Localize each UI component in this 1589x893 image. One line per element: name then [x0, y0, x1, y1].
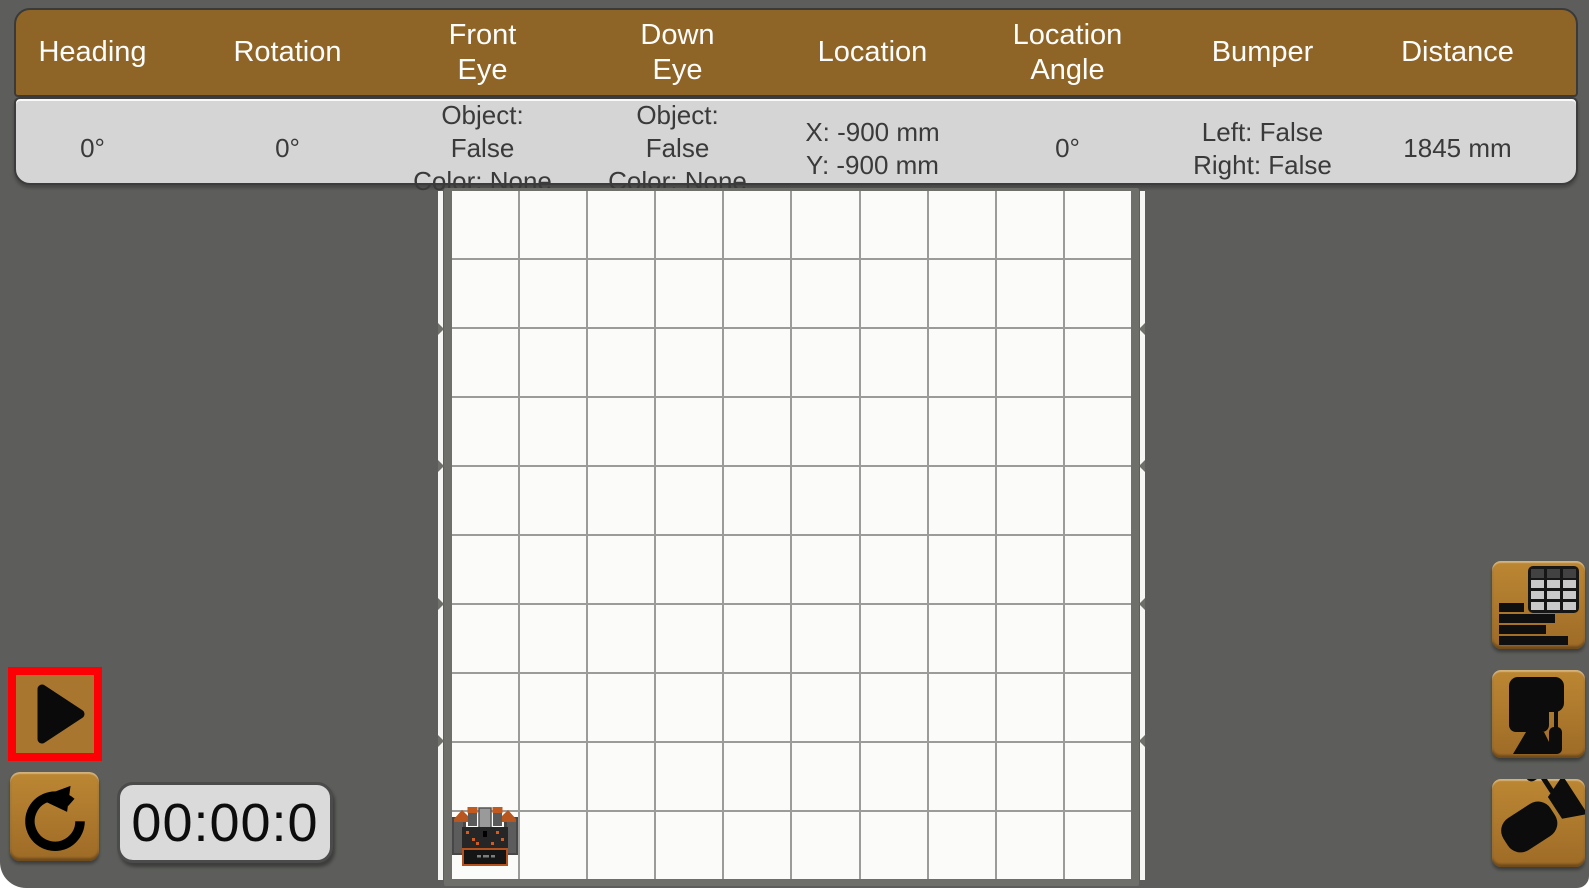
field-cell: [452, 398, 518, 465]
field-cell: [997, 605, 1063, 672]
camera-view-button[interactable]: [1492, 779, 1585, 867]
field-cell: [452, 191, 518, 258]
column-header-front-eye: Front Eye: [406, 18, 601, 88]
field-cell: [861, 674, 927, 741]
field-cell: [1065, 743, 1131, 810]
value-location-angle: 0°: [991, 132, 1186, 165]
field-cell: [1065, 398, 1131, 465]
field-cell: [452, 536, 518, 603]
field-cell: [997, 743, 1063, 810]
field-cell: [656, 743, 722, 810]
field-cell: [520, 674, 586, 741]
field-cell: [997, 812, 1063, 879]
field-cell: [792, 674, 858, 741]
value-bumper: Left: False Right: False: [1186, 116, 1381, 182]
field-cell: [997, 260, 1063, 327]
field-cell: [861, 605, 927, 672]
field-cell: [520, 260, 586, 327]
field-cell: [588, 398, 654, 465]
field-cell: [588, 605, 654, 672]
header-label-line: Eye: [601, 53, 754, 88]
field-cell: [792, 743, 858, 810]
field-cell: [656, 674, 722, 741]
value-line: 0°: [16, 132, 169, 165]
value-rotation: 0°: [211, 132, 406, 165]
value-down-eye: Object: False Color: None: [601, 99, 796, 198]
field-wall-notch: [1139, 735, 1145, 747]
field-cell: [861, 329, 927, 396]
field-cell: [929, 260, 995, 327]
field-cell: [724, 467, 790, 534]
field-cell: [452, 605, 518, 672]
value-distance: 1845 mm: [1381, 132, 1576, 165]
header-label-line: Bumper: [1186, 35, 1339, 70]
field-cell: [792, 605, 858, 672]
field-cell: [792, 467, 858, 534]
field-cell: [520, 398, 586, 465]
field-cell: [929, 605, 995, 672]
timer-display: 00:00:0: [117, 782, 333, 863]
value-line: Object: False: [601, 99, 754, 165]
field-cell: [1065, 812, 1131, 879]
value-line: Right: False: [1186, 149, 1339, 182]
field-cell: [520, 605, 586, 672]
value-heading: 0°: [16, 132, 211, 165]
robot-sprite[interactable]: [452, 807, 518, 867]
field-cell: [929, 191, 995, 258]
field-cell: [588, 674, 654, 741]
field-cell: [724, 605, 790, 672]
field-cell: [588, 743, 654, 810]
header-label-line: Distance: [1381, 35, 1534, 70]
field-wall-notch: [438, 735, 444, 747]
field-cell: [520, 191, 586, 258]
column-header-location-angle: Location Angle: [991, 18, 1186, 88]
field-cell: [588, 536, 654, 603]
robot-monitor-icon: [1492, 670, 1585, 758]
camera-view-icon: [1492, 779, 1585, 867]
field-cell: [452, 467, 518, 534]
field-cell: [724, 398, 790, 465]
field-cell: [656, 260, 722, 327]
robot-front-right-corner: [502, 810, 516, 822]
field-cell: [929, 674, 995, 741]
field-cell: [929, 398, 995, 465]
value-location: X: -900 mm Y: -900 mm: [796, 116, 991, 182]
field-wall-notch: [1139, 460, 1145, 472]
field-cell: [656, 605, 722, 672]
header-label-line: Angle: [991, 53, 1144, 88]
field-cell: [588, 329, 654, 396]
column-header-heading: Heading: [16, 35, 211, 70]
field-wall-notch: [438, 323, 444, 335]
field-cell: [997, 329, 1063, 396]
column-header-bumper: Bumper: [1186, 35, 1381, 70]
timer-value: 00:00:0: [131, 792, 318, 854]
field-cell: [656, 812, 722, 879]
field-grid: [452, 191, 1131, 879]
field-right-wall: [1140, 191, 1145, 880]
robot-monitor-button[interactable]: [1492, 670, 1585, 758]
field-cell: [1065, 329, 1131, 396]
header-label-line: Heading: [16, 35, 169, 70]
field-cell: [724, 812, 790, 879]
field-cell: [656, 536, 722, 603]
field-cell: [588, 260, 654, 327]
play-button[interactable]: [8, 667, 102, 761]
field-cell: [861, 812, 927, 879]
field-cell: [861, 536, 927, 603]
header-label-line: Eye: [406, 53, 559, 88]
column-header-location: Location: [796, 35, 991, 70]
field-cell: [792, 812, 858, 879]
field-cell: [997, 536, 1063, 603]
field-cell: [724, 260, 790, 327]
value-line: 1845 mm: [1381, 132, 1534, 165]
field-wall-notch: [438, 598, 444, 610]
field-cell: [861, 467, 927, 534]
field-cell: [997, 674, 1063, 741]
field-cell: [520, 329, 586, 396]
value-front-eye: Object: False Color: None: [406, 99, 601, 198]
field-cell: [1065, 605, 1131, 672]
field-cell: [520, 467, 586, 534]
field-cell: [861, 191, 927, 258]
play-icon: [16, 675, 94, 753]
column-header-rotation: Rotation: [211, 35, 406, 70]
field-cell: [724, 329, 790, 396]
field-wall-notch: [1139, 323, 1145, 335]
field-cell: [452, 260, 518, 327]
field-cell: [1065, 191, 1131, 258]
header-label-line: Down: [601, 18, 754, 53]
field-cell: [929, 329, 995, 396]
field-cell: [1065, 536, 1131, 603]
field-cell: [861, 743, 927, 810]
field-wall-notch: [438, 460, 444, 472]
field-cell: [929, 812, 995, 879]
value-line: Object: False: [406, 99, 559, 165]
field-cell: [520, 743, 586, 810]
field-cell: [792, 536, 858, 603]
field-cell: [452, 674, 518, 741]
field-cell: [588, 812, 654, 879]
field-cell: [452, 329, 518, 396]
value-line: 0°: [991, 132, 1144, 165]
field-cell: [997, 191, 1063, 258]
app-window: Heading Rotation Front Eye Down Eye Loca…: [0, 0, 1589, 893]
reset-button[interactable]: [10, 772, 99, 861]
header-label-line: Location: [796, 35, 949, 70]
field-cell: [656, 467, 722, 534]
value-line: 0°: [211, 132, 364, 165]
sensor-dashboard-icon: [1492, 561, 1585, 649]
field-cell: [724, 743, 790, 810]
field-wall-notch: [1139, 598, 1145, 610]
header-label-line: Front: [406, 18, 559, 53]
field-cell: [724, 536, 790, 603]
header-label-line: Location: [991, 18, 1144, 53]
robot-front-left-corner: [454, 810, 468, 822]
field-cell: [724, 674, 790, 741]
field-cell: [452, 743, 518, 810]
field-cell: [861, 398, 927, 465]
value-line: Y: -900 mm: [796, 149, 949, 182]
field-cell: [792, 191, 858, 258]
field-cell: [1065, 260, 1131, 327]
sensor-dashboard-toggle-button[interactable]: [1492, 561, 1585, 649]
field-cell: [724, 191, 790, 258]
field-cell: [656, 329, 722, 396]
field-cell: [792, 398, 858, 465]
field-left-wall: [438, 191, 443, 880]
header-label-line: Rotation: [211, 35, 364, 70]
field-cell: [1065, 467, 1131, 534]
field-cell: [656, 398, 722, 465]
field-cell: [588, 467, 654, 534]
field-cell: [520, 812, 586, 879]
field-cell: [520, 536, 586, 603]
field-cell: [997, 467, 1063, 534]
field-cell: [929, 743, 995, 810]
field-cell: [656, 191, 722, 258]
reset-counterclockwise-icon: [17, 779, 93, 855]
field-cell: [929, 536, 995, 603]
sensor-dashboard-values: 0° 0° Object: False Color: None Object: …: [14, 97, 1578, 185]
field-cell: [929, 467, 995, 534]
column-header-down-eye: Down Eye: [601, 18, 796, 88]
field-cell: [997, 398, 1063, 465]
field-cell: [792, 260, 858, 327]
field-cell: [1065, 674, 1131, 741]
value-line: X: -900 mm: [796, 116, 949, 149]
sensor-dashboard-header: Heading Rotation Front Eye Down Eye Loca…: [14, 8, 1578, 97]
column-header-distance: Distance: [1381, 35, 1576, 70]
field-cell: [792, 329, 858, 396]
value-line: Left: False: [1186, 116, 1339, 149]
field-cell: [588, 191, 654, 258]
field-cell: [861, 260, 927, 327]
